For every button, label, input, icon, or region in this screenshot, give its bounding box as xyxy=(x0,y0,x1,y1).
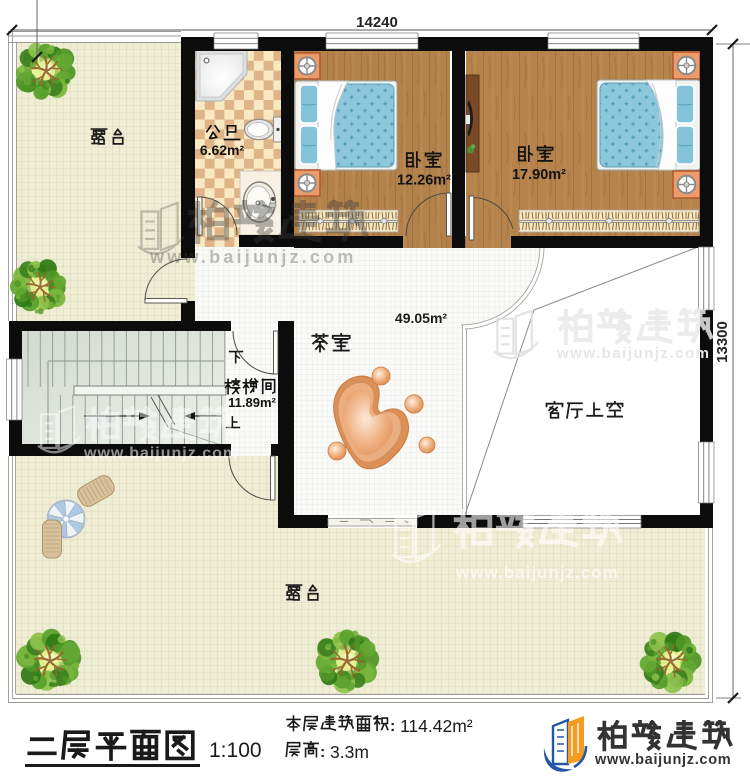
svg-text:49.05m²: 49.05m² xyxy=(395,310,447,326)
svg-text:www.baijunjz.com: www.baijunjz.com xyxy=(149,247,357,267)
svg-text:17.90m²: 17.90m² xyxy=(512,167,566,183)
svg-text:www.baijunjz.com: www.baijunjz.com xyxy=(83,445,238,462)
svg-text:14240: 14240 xyxy=(356,14,398,31)
svg-text:www.baijunjz.com: www.baijunjz.com xyxy=(594,752,731,768)
svg-text:12.26m²: 12.26m² xyxy=(397,173,451,189)
svg-text:www.baijunjz.com: www.baijunjz.com xyxy=(455,563,619,582)
svg-text:www.baijunjz.com: www.baijunjz.com xyxy=(556,345,710,362)
svg-text::: : xyxy=(320,744,325,761)
svg-text::: : xyxy=(390,718,395,735)
svg-text:3.3m: 3.3m xyxy=(330,742,369,762)
svg-text:6.62m²: 6.62m² xyxy=(200,142,245,158)
svg-text:13300: 13300 xyxy=(714,321,731,363)
svg-text:1:100: 1:100 xyxy=(209,739,262,762)
svg-text:11.89m²: 11.89m² xyxy=(228,395,276,410)
svg-text:114.42m²: 114.42m² xyxy=(400,716,473,736)
